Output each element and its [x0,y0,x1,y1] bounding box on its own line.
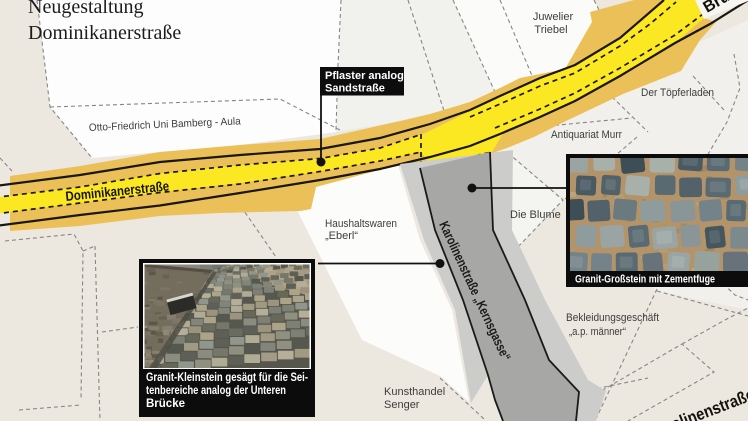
svg-text:Senger: Senger [384,399,420,411]
svg-text:„Eberl“: „Eberl“ [325,230,358,242]
svg-text:Brücke: Brücke [146,398,185,410]
svg-text:Sandstraße: Sandstraße [325,83,385,95]
svg-text:„a.p. männer“: „a.p. männer“ [569,326,626,338]
svg-text:Dominikanerstraße: Dominikanerstraße [28,22,181,44]
svg-text:Die Blume: Die Blume [510,209,561,221]
svg-text:Granit-Kleinstein gesägt für d: Granit-Kleinstein gesägt für die Sei- [146,372,308,384]
svg-text:Kunsthandel: Kunsthandel [384,386,445,398]
svg-text:Triebel: Triebel [534,24,567,36]
svg-text:Neugestaltung: Neugestaltung [28,0,144,18]
svg-text:Antiquariat Murr: Antiquariat Murr [551,129,622,141]
svg-text:Pflaster analog: Pflaster analog [325,70,404,82]
svg-text:tenbereiche analog der Unteren: tenbereiche analog der Unteren [146,385,286,397]
svg-text:Juwelier: Juwelier [533,11,574,23]
svg-text:Bekleidungsgeschäft: Bekleidungsgeschäft [566,312,659,324]
svg-text:Granit-Großstein mit Zementfug: Granit-Großstein mit Zementfuge [575,274,715,286]
svg-text:Haushaltswaren: Haushaltswaren [325,218,397,230]
svg-text:Der Töpferladen: Der Töpferladen [641,87,714,99]
